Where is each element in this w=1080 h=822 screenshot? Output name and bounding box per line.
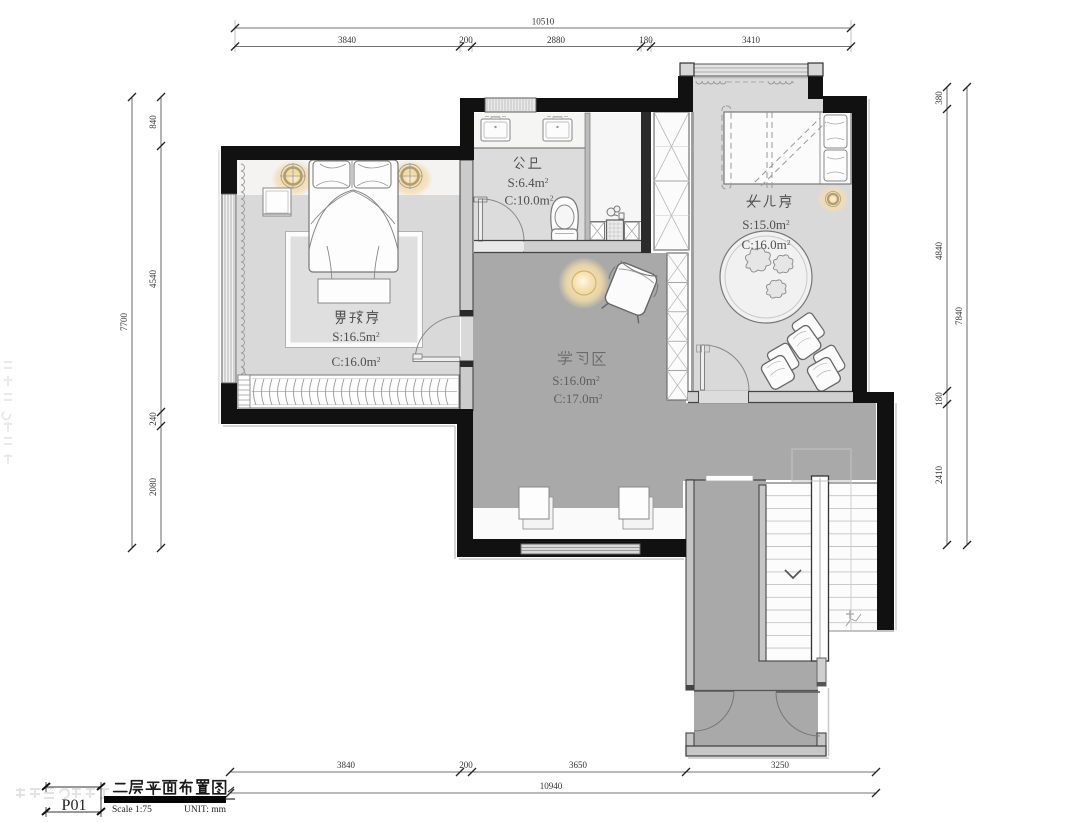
svg-text:200: 200 [459, 35, 473, 45]
svg-text:3650: 3650 [569, 760, 588, 770]
svg-text:2880: 2880 [547, 35, 566, 45]
svg-text:S:15.0m2: S:15.0m2 [742, 217, 790, 232]
svg-text:C:10.0m2: C:10.0m2 [505, 193, 554, 208]
svg-text:10510: 10510 [532, 17, 555, 27]
svg-text:840: 840 [148, 115, 158, 129]
svg-text:S:16.0m2: S:16.0m2 [552, 373, 600, 388]
svg-text:180: 180 [934, 392, 944, 406]
svg-text:C:16.0m2: C:16.0m2 [742, 237, 791, 252]
svg-text:2410: 2410 [934, 466, 944, 485]
svg-text:3840: 3840 [337, 760, 356, 770]
svg-text:P01: P01 [62, 797, 87, 814]
svg-text:S:6.4m2: S:6.4m2 [508, 175, 549, 190]
svg-text:Scale 1:75: Scale 1:75 [112, 805, 152, 815]
svg-text:C:17.0m2: C:17.0m2 [554, 391, 603, 406]
svg-text:2080: 2080 [148, 478, 158, 497]
svg-text:200: 200 [459, 760, 473, 770]
svg-text:7700: 7700 [119, 313, 129, 332]
svg-text:4540: 4540 [148, 270, 158, 289]
svg-text:3410: 3410 [742, 35, 761, 45]
svg-text:240: 240 [148, 412, 158, 426]
svg-text:S:16.5m2: S:16.5m2 [332, 329, 380, 344]
svg-text:180: 180 [639, 35, 653, 45]
svg-text:380: 380 [934, 91, 944, 105]
svg-text:3250: 3250 [771, 760, 790, 770]
svg-text:3840: 3840 [338, 35, 357, 45]
svg-text:UNIT: mm: UNIT: mm [184, 805, 227, 815]
svg-text:4840: 4840 [934, 242, 944, 261]
svg-text:10940: 10940 [540, 781, 563, 791]
svg-text:7840: 7840 [954, 307, 964, 326]
svg-text:C:16.0m2: C:16.0m2 [332, 354, 381, 369]
